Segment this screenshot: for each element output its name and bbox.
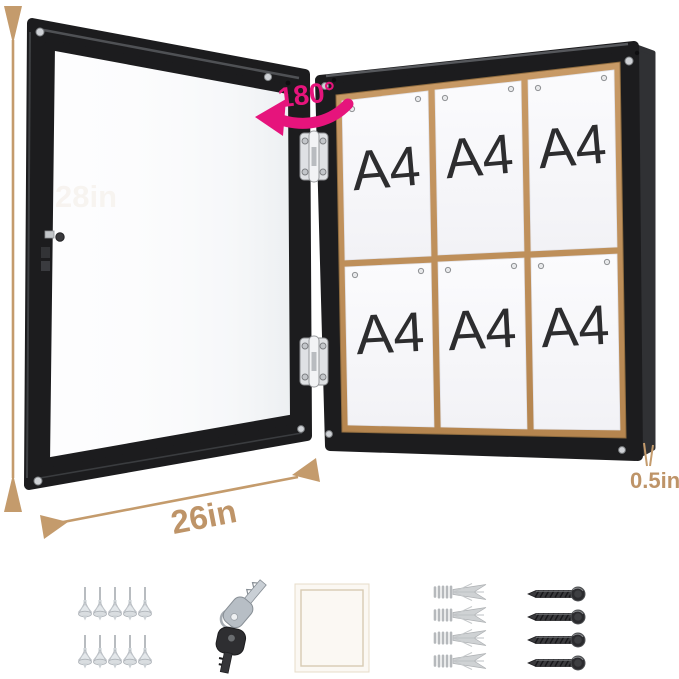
a4-paper: A4 bbox=[438, 258, 527, 429]
wall-anchors-group bbox=[435, 584, 486, 670]
rivet-hole-icon bbox=[635, 51, 639, 55]
screw-head-icon bbox=[320, 343, 326, 349]
paper-label: A4 bbox=[349, 134, 423, 203]
paper-sheet-icon bbox=[295, 584, 369, 672]
push-pin-icon bbox=[78, 635, 92, 669]
wall-anchor-icon bbox=[435, 653, 486, 670]
push-pin-icon bbox=[123, 587, 137, 621]
screw-head-icon bbox=[302, 374, 308, 380]
wall-anchor-icon bbox=[435, 607, 486, 624]
depth-label: 0.5in bbox=[630, 468, 679, 493]
screw-icon bbox=[528, 633, 585, 647]
screw-head-icon bbox=[320, 374, 326, 380]
screw-head-icon bbox=[320, 169, 326, 175]
paper-pin-icon bbox=[601, 75, 606, 80]
rivet-icon bbox=[625, 57, 633, 65]
paper-label: A4 bbox=[535, 112, 609, 181]
a4-paper: A4 bbox=[528, 70, 617, 251]
screw-icon bbox=[528, 656, 585, 670]
rivet-icon bbox=[298, 426, 305, 433]
wall-anchor-icon bbox=[435, 584, 486, 601]
arrowhead-up bbox=[4, 6, 22, 44]
paper-pin-icon bbox=[535, 85, 540, 90]
paper-label: A4 bbox=[442, 122, 516, 191]
push-pins-group bbox=[78, 587, 152, 669]
rivet-icon bbox=[36, 28, 44, 36]
screw-icon bbox=[528, 610, 585, 624]
push-pin-icon bbox=[78, 587, 92, 621]
paper-pin-icon bbox=[508, 86, 513, 91]
lock-knob-icon bbox=[56, 233, 64, 241]
paper-label: A4 bbox=[354, 300, 426, 366]
lock-plate-icon bbox=[45, 231, 54, 238]
hinge bbox=[300, 131, 328, 182]
latch-tab-icon bbox=[41, 247, 50, 258]
wall-anchor-icon bbox=[435, 630, 486, 647]
paper-pin-icon bbox=[445, 267, 450, 272]
key-icon bbox=[220, 575, 272, 631]
hinge-slot-icon bbox=[312, 147, 317, 166]
screw-icon bbox=[528, 587, 585, 601]
bulletin-board-scene: 28in A4 bbox=[0, 0, 679, 679]
push-pin-icon bbox=[138, 587, 152, 621]
rivet-icon bbox=[264, 73, 271, 80]
arrowhead-down bbox=[4, 474, 22, 512]
screw-head-icon bbox=[320, 138, 326, 144]
rivet-icon bbox=[326, 431, 333, 438]
push-pin-icon bbox=[108, 587, 122, 621]
push-pin-icon bbox=[93, 635, 107, 669]
door-glass-sheen bbox=[45, 45, 295, 463]
a4-paper: A4 bbox=[435, 81, 524, 255]
push-pin-icon bbox=[123, 635, 137, 669]
push-pin-icon bbox=[138, 635, 152, 669]
paper-pin-icon bbox=[442, 95, 447, 100]
rivet-icon bbox=[34, 477, 42, 485]
hardware-row bbox=[78, 575, 585, 675]
screw-head-icon bbox=[302, 138, 308, 144]
paper-pin-icon bbox=[511, 263, 516, 268]
hinge bbox=[300, 336, 328, 387]
a4-paper: A4 bbox=[345, 263, 434, 427]
latch-tab-icon bbox=[41, 261, 50, 271]
a4-paper: A4 bbox=[531, 254, 620, 430]
screw-head-icon bbox=[302, 169, 308, 175]
push-pin-icon bbox=[108, 635, 122, 669]
paper-pin-icon bbox=[418, 268, 423, 273]
rivet-icon bbox=[619, 447, 626, 454]
open-door bbox=[27, 23, 307, 485]
paper-pin-icon bbox=[415, 96, 420, 101]
paper-pin-icon bbox=[352, 272, 357, 277]
arrowhead-left bbox=[40, 515, 68, 539]
paper-pin-icon bbox=[604, 259, 609, 264]
paper-label: A4 bbox=[446, 296, 518, 362]
hinge-slot-icon bbox=[312, 352, 317, 371]
keys-group bbox=[210, 575, 271, 675]
a4-paper: A4 bbox=[342, 91, 431, 260]
key-icon bbox=[210, 625, 247, 675]
screws-group bbox=[528, 587, 585, 670]
screw-head-icon bbox=[302, 343, 308, 349]
cork-board: A4 A4 A4 A4 A4 bbox=[320, 44, 653, 456]
product-diagram: 28in A4 bbox=[0, 0, 679, 679]
paper-pin-icon bbox=[538, 263, 543, 268]
push-pin-icon bbox=[93, 587, 107, 621]
paper-label: A4 bbox=[539, 293, 611, 359]
